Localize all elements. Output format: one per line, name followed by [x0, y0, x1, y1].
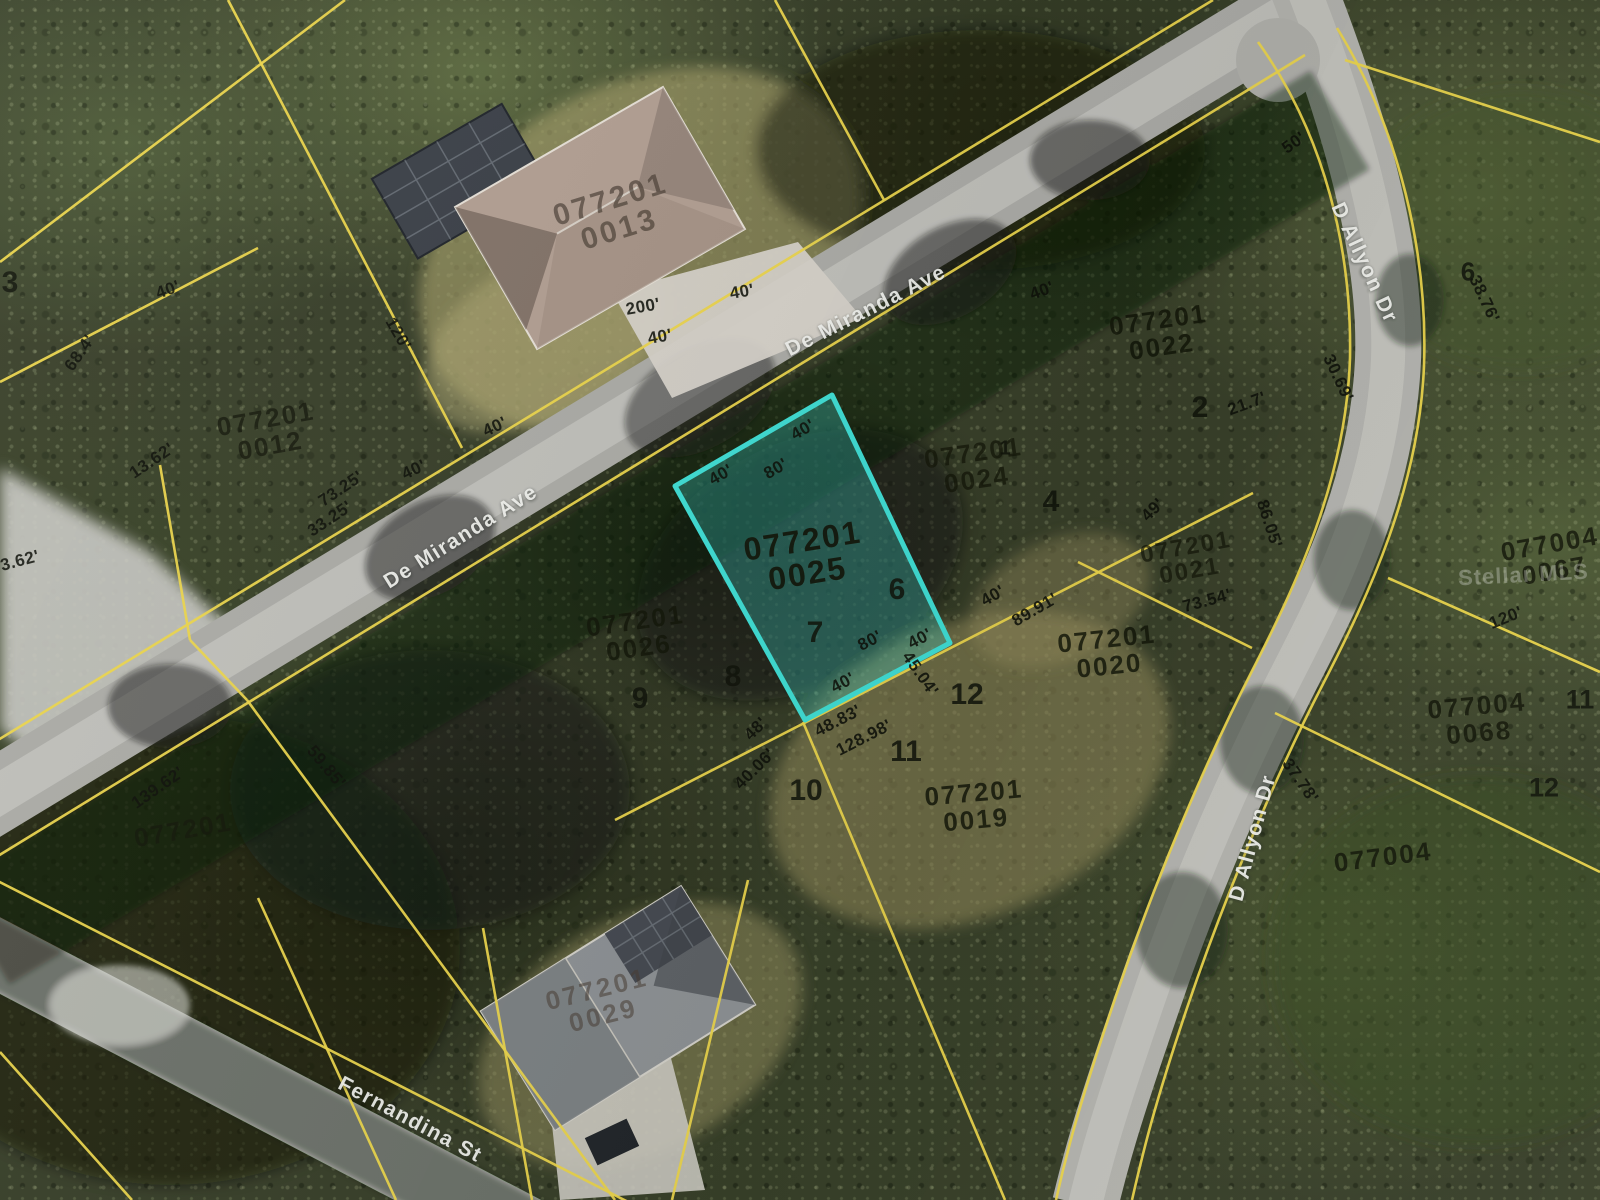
aerial-parcel-map: 0772010013077201001207720100220772010024… — [0, 0, 1600, 1200]
photo-sheen — [0, 0, 1600, 1200]
